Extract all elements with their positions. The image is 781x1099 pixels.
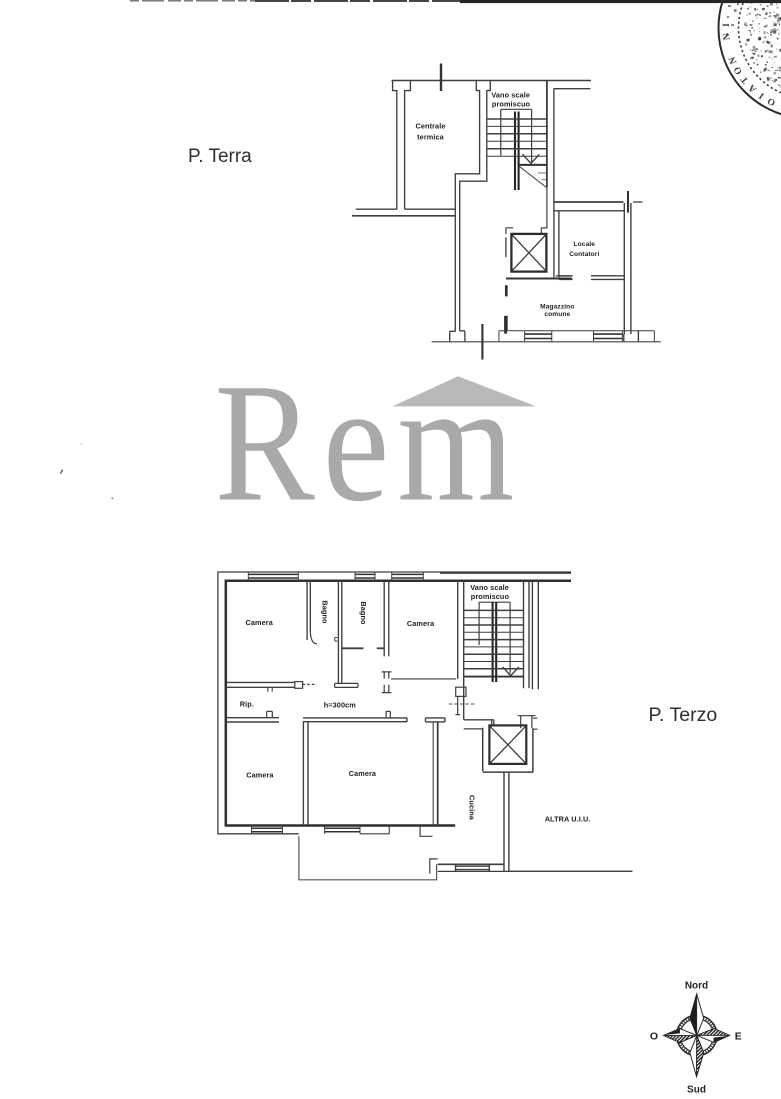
svg-text:O: O	[650, 1031, 658, 1043]
svg-text:Centrale: Centrale	[416, 122, 446, 131]
svg-text:Camera: Camera	[349, 769, 377, 778]
svg-text:h=300cm: h=300cm	[324, 700, 357, 709]
svg-text:promiscuo: promiscuo	[492, 99, 531, 108]
svg-text:promiscuo: promiscuo	[471, 592, 510, 601]
svg-text:P. Terra: P. Terra	[188, 146, 252, 167]
svg-text:Sud: Sud	[687, 1084, 706, 1095]
svg-text:comune: comune	[544, 311, 570, 318]
svg-text:E: E	[735, 1031, 742, 1043]
svg-text:Camera: Camera	[246, 771, 274, 780]
svg-text:Camera: Camera	[246, 618, 274, 627]
svg-text:I: I	[722, 23, 732, 27]
svg-text:Nord: Nord	[685, 981, 708, 992]
svg-text:Camera: Camera	[407, 619, 435, 628]
svg-text:Contatori: Contatori	[569, 251, 599, 258]
svg-text:Cucina: Cucina	[468, 795, 477, 821]
svg-text:N: N	[722, 33, 733, 41]
svg-text:ALTRA U.I.U.: ALTRA U.I.U.	[545, 814, 591, 823]
svg-text:Vano scale: Vano scale	[470, 583, 509, 592]
svg-text:Bagno: Bagno	[321, 600, 330, 624]
svg-text:Vano scale: Vano scale	[491, 91, 530, 100]
svg-text:termica: termica	[417, 133, 445, 142]
svg-text:P. Terzo: P. Terzo	[649, 704, 718, 726]
svg-text:Magazzino: Magazzino	[540, 303, 574, 310]
svg-text:Locale: Locale	[574, 241, 596, 248]
svg-text:Rem: Rem	[215, 348, 523, 537]
svg-text:Bagno: Bagno	[359, 601, 368, 625]
svg-text:Rip.: Rip.	[240, 699, 254, 708]
